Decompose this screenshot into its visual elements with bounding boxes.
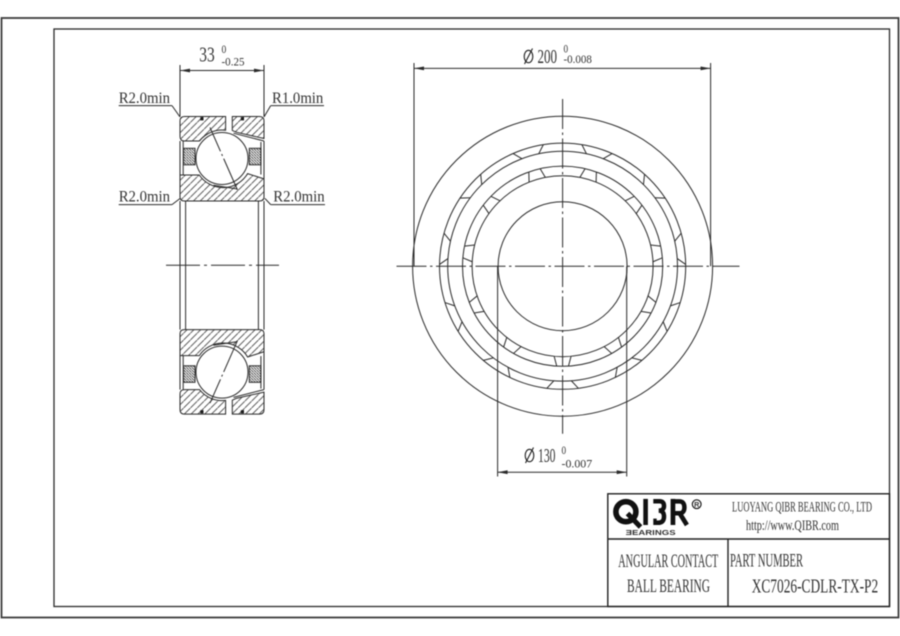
svg-text:0: 0 <box>562 445 567 457</box>
svg-text:R2.0min: R2.0min <box>273 189 325 206</box>
svg-text:R: R <box>694 500 700 509</box>
svg-text:ANGULAR CONTACT: ANGULAR CONTACT <box>618 551 718 572</box>
svg-text:-0.25: -0.25 <box>222 54 245 68</box>
svg-text:PART NUMBER: PART NUMBER <box>730 552 803 572</box>
svg-text:http://www.QIBR.com: http://www.QIBR.com <box>746 518 840 534</box>
svg-text:33: 33 <box>199 43 215 67</box>
svg-text:ƎEARINGS: ƎEARINGS <box>626 528 676 537</box>
svg-text:R2.0min: R2.0min <box>119 189 171 206</box>
svg-text:BALL BEARING: BALL BEARING <box>627 576 710 597</box>
svg-text:XC7026-CDLR-TX-P2: XC7026-CDLR-TX-P2 <box>752 575 879 597</box>
svg-text:-0.007: -0.007 <box>562 459 593 471</box>
svg-text:R2.0min: R2.0min <box>119 90 171 107</box>
svg-text:-0.008: -0.008 <box>564 54 593 66</box>
svg-text:130: 130 <box>538 445 556 467</box>
svg-text:LUOYANG QIBR BEARING CO., LTD: LUOYANG QIBR BEARING CO., LTD <box>732 500 872 516</box>
svg-text:200: 200 <box>538 46 558 68</box>
svg-text:R1.0min: R1.0min <box>272 90 324 107</box>
